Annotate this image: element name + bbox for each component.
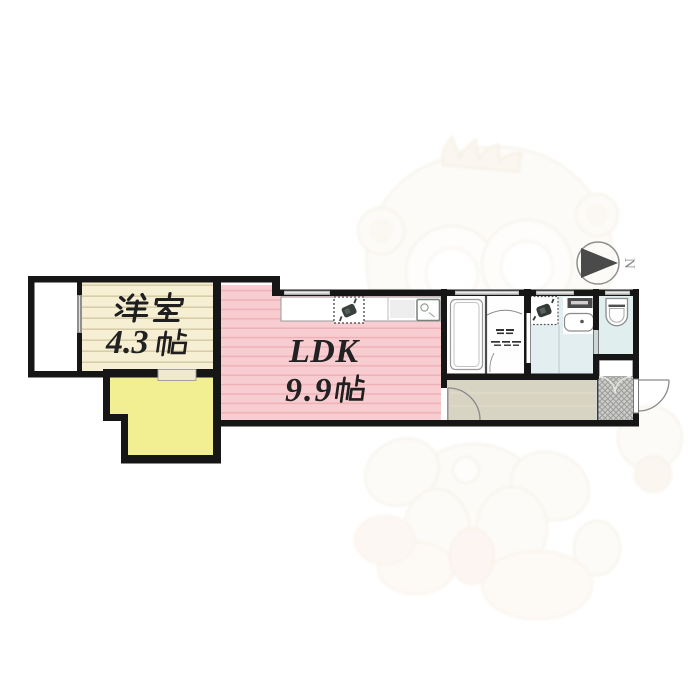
svg-text:4.3: 4.3	[105, 324, 149, 361]
svg-text:N: N	[621, 258, 637, 269]
svg-text:LDK: LDK	[288, 333, 360, 370]
svg-text:9.9: 9.9	[285, 372, 334, 409]
